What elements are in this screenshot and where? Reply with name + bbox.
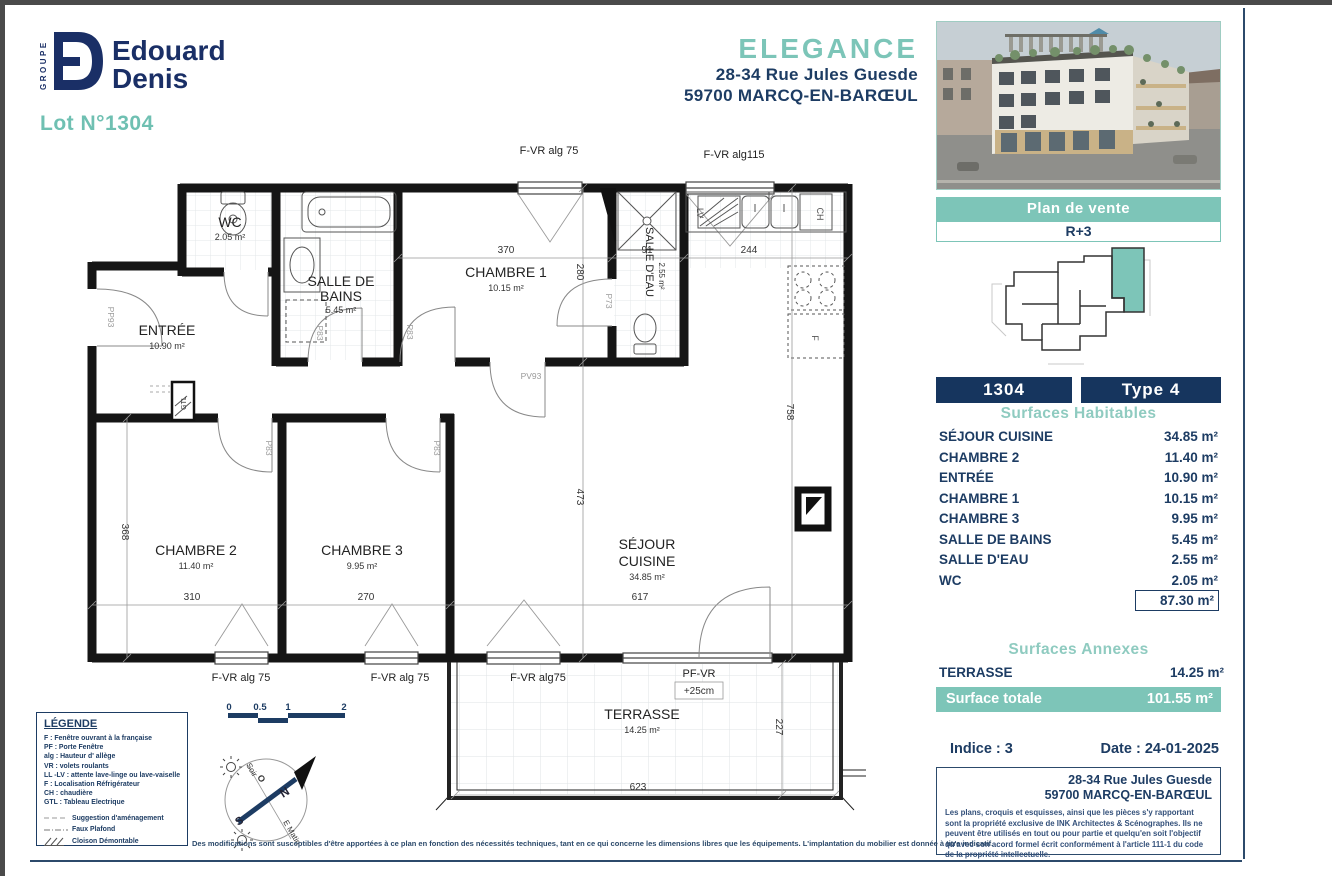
svg-text:BAINS: BAINS: [320, 288, 362, 304]
building-render: [937, 22, 1220, 189]
room-chambre2: CHAMBRE 2: [155, 542, 237, 558]
svg-text:5.45 m²: 5.45 m²: [326, 305, 357, 315]
room-chambre1: CHAMBRE 1: [465, 264, 547, 280]
legend-title: LÉGENDE: [44, 718, 183, 730]
svg-text:10.90 m²: 10.90 m²: [149, 341, 185, 351]
copyright-text: Les plans, croquis et esquisses, ainsi q…: [945, 808, 1212, 861]
svg-text:11.40 m²: 11.40 m²: [179, 561, 214, 571]
window-label-sejour: F-VR alg75: [510, 672, 566, 684]
dim-310: 310: [184, 592, 201, 603]
date: Date : 24-01-2025: [1101, 741, 1220, 757]
dim-244: 244: [741, 245, 758, 256]
dim-280: 280: [574, 264, 585, 281]
door-p73: P73: [604, 293, 614, 308]
window-label-top2: F-VR alg115: [704, 149, 765, 161]
fridge-label: F: [810, 335, 820, 341]
table-row: SALLE D'EAU2.55 m²: [936, 550, 1221, 571]
indice-date-row: Indice : 3 Date : 24-01-2025: [936, 741, 1221, 757]
window-label-ch2: F-VR alg 75: [212, 672, 271, 684]
lot-box-type: Type 4: [1081, 377, 1221, 403]
duct-sejour: [798, 490, 828, 528]
table-row-terrasse: TERRASSE 14.25 m²: [936, 663, 1227, 684]
lot-box-number: 1304: [936, 377, 1072, 403]
window-label-ch3: F-VR alg 75: [371, 672, 430, 684]
table-row: ENTRÉE10.90 m²: [936, 468, 1221, 489]
door-p83-ch2: P83: [264, 440, 274, 455]
bottom-rule: [30, 860, 1242, 862]
svg-text:1: 1: [285, 702, 291, 713]
compass: N S Soir O E Matin: [220, 756, 316, 851]
svg-text:14.25 m²: 14.25 m²: [624, 725, 660, 735]
dashed-line-icon: [44, 815, 68, 821]
door-p83-ch3: P83: [432, 440, 442, 455]
legend-item-faux-plafond: Faux Plafond: [44, 824, 183, 836]
window-label-pfvr: PF-VR: [683, 668, 716, 680]
door-pv93: PV93: [521, 371, 542, 381]
dim-270: 270: [358, 592, 375, 603]
dim-617: 617: [632, 592, 649, 603]
dash-dot-line-icon: [44, 827, 68, 833]
svg-text:CUISINE: CUISINE: [619, 553, 676, 569]
ch-label: CH: [815, 208, 825, 221]
footer-address2: 59700 MARCQ-EN-BARŒUL: [945, 788, 1212, 803]
sidebar: Plan de vente R+3 1304 Type 4 Surfaces H…: [936, 0, 1221, 860]
dim-227: 227: [773, 719, 784, 736]
window-label-top1: F-VR alg 75: [520, 145, 579, 157]
dim-368: 368: [119, 524, 130, 541]
footer-address1: 28-34 Rue Jules Guesde: [945, 773, 1212, 788]
hatched-line-icon: [44, 837, 68, 846]
room-entree: ENTRÉE: [139, 322, 196, 338]
door-p83-sdb: P83: [315, 325, 325, 340]
legend-item-suggestion: Suggestion d'aménagement: [44, 813, 183, 825]
svg-text:2.55 m²: 2.55 m²: [657, 262, 666, 289]
legend-item-cloison: Cloison Démontable: [44, 836, 183, 848]
dim-623: 623: [630, 782, 647, 793]
table-row: CHAMBRE 211.40 m²: [936, 448, 1221, 469]
indice: Indice : 3: [950, 741, 1013, 757]
svg-text:9.95 m²: 9.95 m²: [347, 561, 378, 571]
gtl-label: GTL: [181, 396, 188, 410]
svg-text:2.05 m²: 2.05 m²: [215, 232, 246, 242]
plan-de-vente-sheet: { "header": { "brand_group": "GROUPE", "…: [0, 0, 1332, 876]
table-row: CHAMBRE 110.15 m²: [936, 489, 1221, 510]
surfaces-habitables-title: Surfaces Habitables: [936, 405, 1221, 423]
legend-box: LÉGENDE F : Fenêtre ouvrant à la françai…: [36, 712, 188, 846]
room-sejour: SÉJOUR: [619, 536, 676, 552]
key-plan-unit-highlight: [1112, 248, 1144, 312]
svg-text:10.15 m²: 10.15 m²: [488, 283, 524, 293]
dim-473: 473: [574, 489, 585, 506]
dim-370: 370: [498, 245, 515, 256]
compass-arrow: [294, 756, 316, 790]
room-salle-de-bains: SALLE DE: [308, 273, 375, 289]
door-p83-ch1: P83: [405, 324, 415, 339]
door-pp93: PP93: [106, 307, 116, 328]
svg-text:2: 2: [341, 702, 346, 713]
surfaces-annexes-title: Surfaces Annexes: [936, 641, 1221, 659]
surfaces-habitables-total: 87.30 m²: [1135, 590, 1219, 611]
building-photo: [936, 21, 1221, 190]
terrace-offset-label: +25cm: [684, 686, 714, 697]
room-wc: WC: [218, 214, 241, 230]
svg-text:34.85 m²: 34.85 m²: [629, 572, 665, 582]
svg-text:0.5: 0.5: [253, 702, 267, 713]
surfaces-habitables-table: SÉJOUR CUISINE34.85 m² CHAMBRE 211.40 m²…: [936, 427, 1221, 591]
floor-level: R+3: [936, 221, 1221, 242]
table-row: SALLE DE BAINS5.45 m²: [936, 530, 1221, 551]
vertical-divider: [1243, 8, 1245, 859]
bottom-disclaimer: Des modifications sont susceptibles d'êt…: [192, 839, 1232, 848]
key-plan: [936, 246, 1221, 374]
room-terrasse: TERRASSE: [604, 706, 679, 722]
table-row: SÉJOUR CUISINE34.85 m²: [936, 427, 1221, 448]
table-row: CHAMBRE 39.95 m²: [936, 509, 1221, 530]
dim-758: 758: [784, 404, 795, 421]
table-row: WC2.05 m²: [936, 571, 1221, 592]
key-plan-graphic: [984, 246, 1174, 374]
svg-text:0: 0: [226, 702, 231, 713]
surface-totale-band: Surface totale 101.55 m²: [936, 687, 1221, 712]
room-salle-eau: SALLE D'EAU: [643, 227, 655, 297]
room-chambre3: CHAMBRE 3: [321, 542, 403, 558]
lv-label: LV: [695, 208, 705, 218]
plan-de-vente-band: Plan de vente: [936, 197, 1221, 221]
scale-bar: 0 0.5 1 2: [226, 702, 346, 723]
